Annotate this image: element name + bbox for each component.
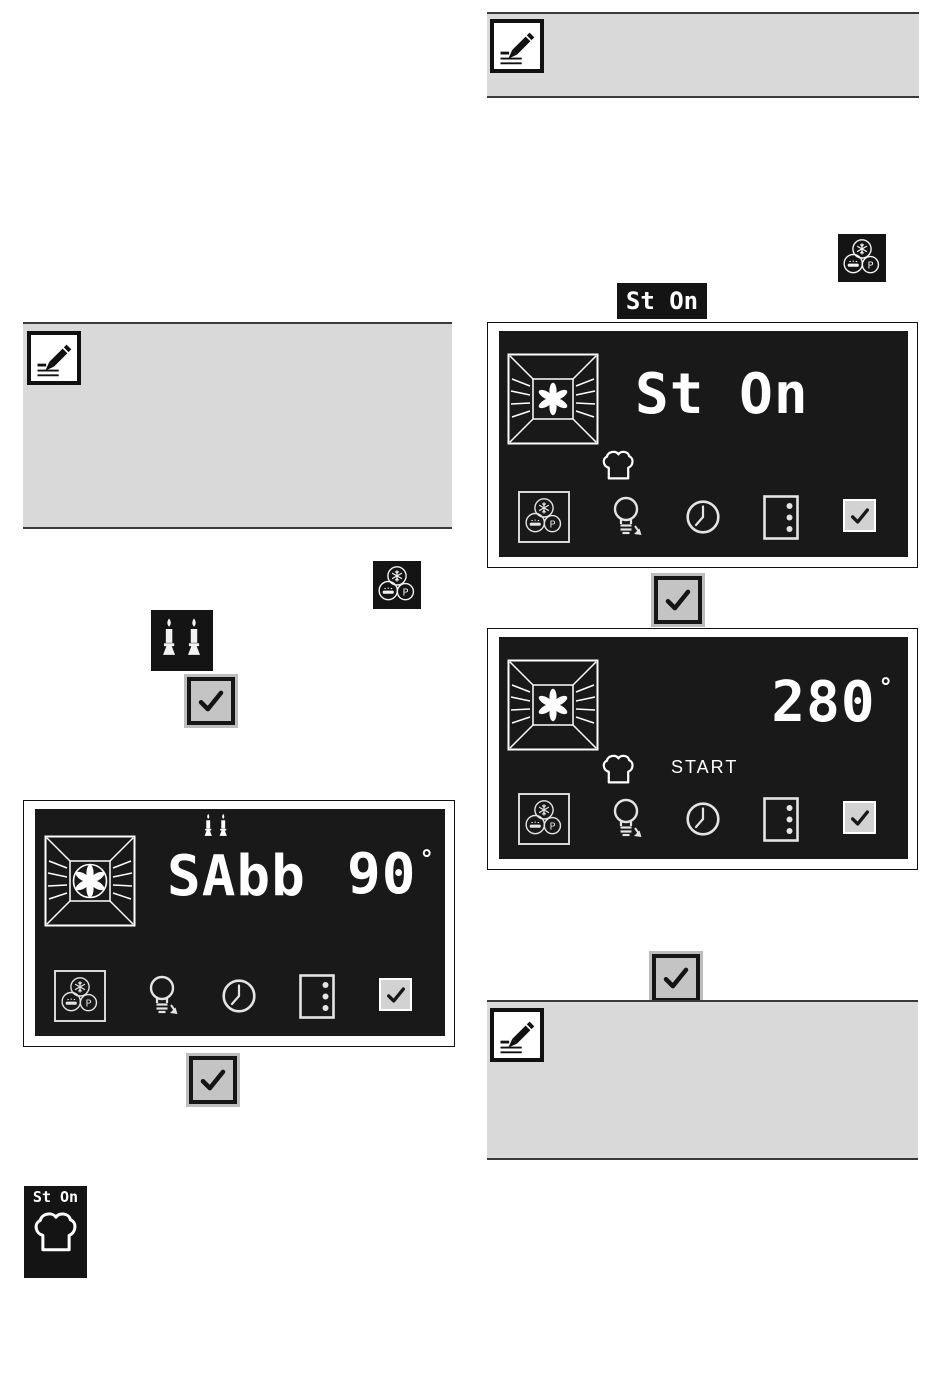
clock-icon <box>685 801 721 837</box>
display-footer-icons <box>499 793 908 849</box>
shelf-level-icon <box>763 495 799 540</box>
pencil-note-icon <box>27 331 81 385</box>
hot-air-fan-circled-icon <box>44 835 136 927</box>
confirm-button <box>189 1056 237 1104</box>
sabbath-candles-icon <box>151 610 213 671</box>
program-selection-icon <box>838 234 886 282</box>
oven-display-sabbath: SAbb 90° <box>23 800 455 1047</box>
degree-symbol: ° <box>419 847 434 871</box>
shelf-level-icon <box>763 797 799 842</box>
start-label: START <box>671 757 738 778</box>
program-selection-icon <box>518 491 570 543</box>
display-mode-text: SAbb <box>167 849 306 905</box>
status-chip-text: St On <box>626 289 698 313</box>
confirm-check-icon <box>379 978 412 1011</box>
sabbath-status-badge: St On <box>24 1186 87 1278</box>
note-box-top-right <box>487 12 919 98</box>
oven-light-icon <box>146 973 184 1023</box>
pencil-note-icon <box>490 1008 544 1062</box>
confirm-button <box>187 677 235 725</box>
shelf-level-icon <box>299 974 335 1019</box>
clock-icon <box>685 499 721 535</box>
note-box-bottom-right <box>487 1000 918 1160</box>
sabbath-on-status-chip: St On <box>617 283 707 319</box>
clock-icon <box>221 978 257 1014</box>
display-temperature: 280° <box>771 675 894 731</box>
confirm-button <box>654 576 702 624</box>
pencil-note-icon <box>490 19 544 73</box>
badge-status-text: St On <box>33 1190 78 1205</box>
confirm-check-icon <box>843 499 876 532</box>
chef-hat-icon <box>600 447 637 482</box>
sabbath-candles-icon <box>201 811 231 844</box>
oven-display-sabbath-on: St On <box>487 322 918 568</box>
program-selection-icon <box>54 970 106 1022</box>
confirm-check-icon <box>843 801 876 834</box>
program-selection-icon <box>373 561 421 609</box>
oven-display-temperature: 280° START <box>487 628 918 870</box>
oven-light-icon <box>610 796 648 846</box>
display-temperature: 90° <box>347 847 435 903</box>
manual-page: St On St On 280° START <box>0 0 950 1373</box>
oven-light-icon <box>610 494 648 544</box>
confirm-button <box>652 954 700 1002</box>
degree-symbol: ° <box>879 675 894 699</box>
display-footer-icons <box>35 970 445 1026</box>
hot-air-fan-icon <box>507 659 599 751</box>
hot-air-fan-icon <box>507 353 599 445</box>
display-footer-icons <box>499 491 908 547</box>
note-box-left <box>23 322 452 529</box>
program-selection-icon <box>518 793 570 845</box>
display-mode-text: St On <box>635 367 809 423</box>
chef-hat-icon <box>600 751 637 786</box>
chef-hat-icon <box>31 1208 81 1254</box>
